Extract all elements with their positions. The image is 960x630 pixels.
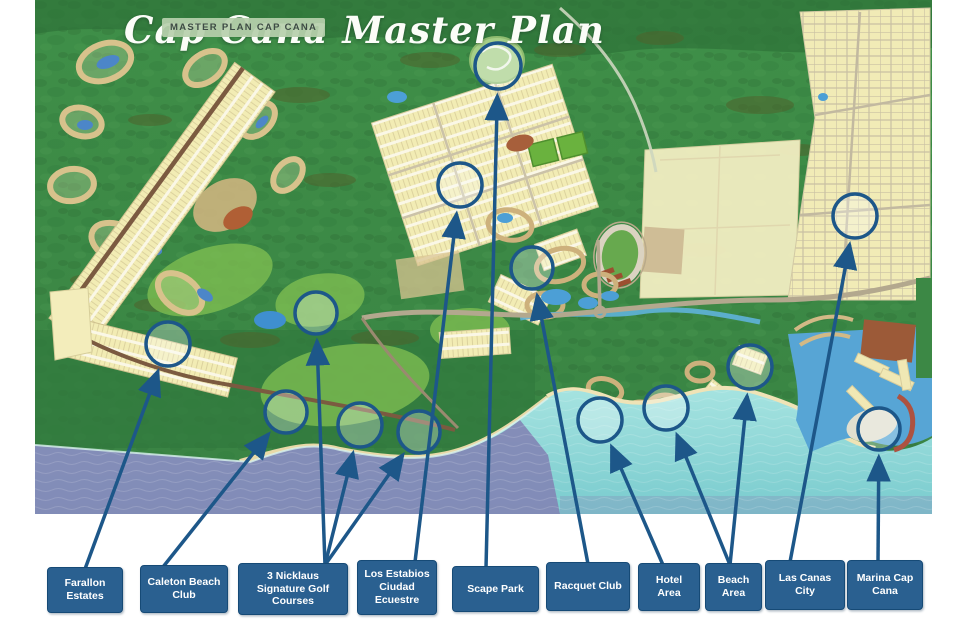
master-plan-map-illustration [0,0,960,630]
map-marker-circle-scape-park [475,43,521,89]
connector-line-marina-cap-cana [878,457,879,562]
map-marker-circle-beach-area [728,345,772,389]
map-marker-circle-los-estabios [438,163,482,207]
map-marker-circle-racquet-club [511,247,553,289]
cap-cana-master-plan-page: Cap Cana Master Plan MASTER PLAN CAP CAN… [0,0,960,630]
map-marker-circle-farallon-estates [146,322,190,366]
las-canas-grid [788,8,930,300]
map-marker-circle-las-canas-city [833,194,877,238]
map-marker-circle-nicklaus-golf-courses [338,403,382,447]
map-marker-circle-hotel-area [578,398,622,442]
map-marker-circle-marina-cap-cana [858,408,900,450]
map-marker-circle-caleton-beach-club [265,391,307,433]
map-marker-circle-beach-area [644,386,688,430]
map-title-badge: MASTER PLAN CAP CANA [162,18,325,37]
map-marker-circle-nicklaus-golf-courses [295,292,337,334]
